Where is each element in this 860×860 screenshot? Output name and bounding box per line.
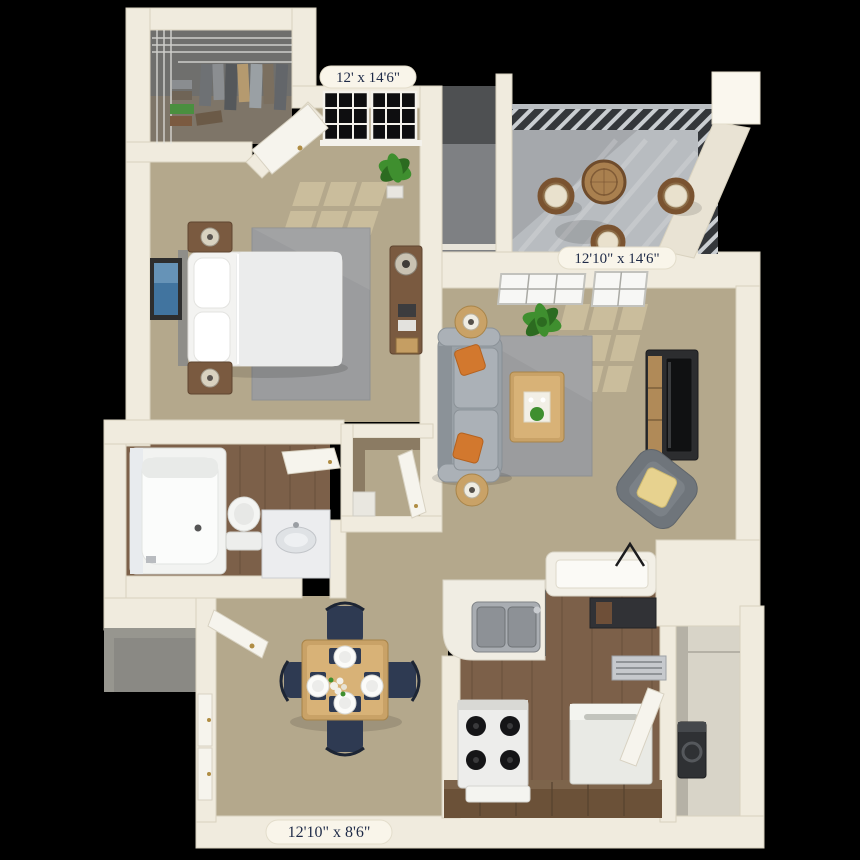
cup <box>529 398 534 403</box>
left-outer-wall <box>126 8 150 446</box>
toilet-seat <box>234 503 254 525</box>
door-knob <box>250 644 255 649</box>
living-dimension-label: 12'10" x 14'6" <box>574 251 659 267</box>
alcove-baseboard <box>442 244 496 250</box>
console-drawers <box>648 356 662 454</box>
bathroom-top-wall <box>104 420 344 444</box>
living-window <box>498 274 585 304</box>
basket <box>396 338 418 353</box>
plate-center <box>339 651 351 663</box>
hall-closet-top-wall <box>341 424 433 438</box>
tub-drain <box>195 525 202 532</box>
balcony-column-top <box>712 72 760 124</box>
laundry-right-wall <box>740 606 764 848</box>
dining-chair <box>326 603 364 644</box>
tv-console <box>646 350 698 460</box>
bedroom-window <box>324 92 368 140</box>
stove-drawer <box>466 786 530 802</box>
sink-basin <box>508 607 536 647</box>
wall-art <box>150 258 182 320</box>
appliance-front <box>596 602 612 624</box>
entry-alcove-shadow <box>442 86 496 144</box>
lamp-finial <box>207 375 213 381</box>
sink-faucet <box>293 522 299 528</box>
tub-tile-surround <box>130 448 143 574</box>
door-knob <box>207 718 211 722</box>
closet-top-wall <box>126 8 316 30</box>
hall-closet-bottom-wall <box>341 516 442 532</box>
entry-porch-slab <box>104 594 196 630</box>
hall-closet-left-wall <box>341 424 353 530</box>
railing-top-rail <box>512 104 718 109</box>
tub-shade <box>142 458 218 478</box>
box <box>398 320 416 331</box>
pillow <box>194 312 230 362</box>
sofa-back <box>438 346 452 468</box>
counter-appliance <box>590 598 656 628</box>
sink-faucet <box>534 607 541 614</box>
sink-inner <box>284 533 308 547</box>
bar-top <box>556 560 648 588</box>
stove <box>458 700 530 802</box>
toilet-tank <box>226 532 262 550</box>
dining-table <box>302 640 388 720</box>
dresser <box>390 246 422 354</box>
door-knob <box>328 460 332 464</box>
plate-center <box>366 680 378 692</box>
pillow <box>194 258 230 308</box>
vanity <box>262 510 330 578</box>
laundry-left-wall <box>660 626 676 822</box>
patio-table <box>583 161 625 203</box>
box <box>398 304 416 317</box>
sofa <box>432 328 512 486</box>
tv-highlight <box>668 362 671 448</box>
lamp-finial <box>468 319 474 325</box>
small-plant <box>530 407 544 421</box>
hall-closet <box>353 438 426 518</box>
toilet <box>226 497 262 550</box>
bedroom-dimension-label: 12' x 14'6" <box>336 70 400 86</box>
duvet <box>236 252 342 366</box>
patio-chair <box>660 180 692 212</box>
kitchen-sink <box>472 602 541 652</box>
floorplan-canvas: 12' x 14'6" 12'10" x 14'6" 12'10" x 8'6" <box>0 0 860 860</box>
entry-porch-shade <box>114 638 196 692</box>
chair-cushion <box>545 185 567 207</box>
bathtub <box>130 448 226 574</box>
stove-controls <box>458 700 528 710</box>
side-table <box>455 306 487 338</box>
hall-closet-shelf <box>353 492 375 516</box>
door-knob <box>414 504 418 508</box>
nightstand <box>188 222 232 252</box>
lamp-finial <box>469 487 475 493</box>
closet-bottom-wall <box>126 142 252 162</box>
closet-right-wall <box>292 8 316 98</box>
door-knob <box>298 146 303 151</box>
floorplan-render: 12' x 14'6" 12'10" x 14'6" 12'10" x 8'6" <box>0 0 860 860</box>
hall-carpet <box>341 530 448 600</box>
nightstand <box>188 362 232 394</box>
bedroom-window <box>372 92 416 140</box>
bathroom-bottom-wall <box>104 576 302 598</box>
door-knob <box>207 772 211 776</box>
bathroom-left-wall <box>104 420 126 598</box>
balcony-left-wall <box>496 74 512 256</box>
plate-center <box>339 697 351 709</box>
balcony-top-railing <box>512 108 718 130</box>
washer-top <box>678 722 706 732</box>
vent-grate <box>612 656 666 680</box>
tub-faucet <box>146 556 156 563</box>
plate-center <box>312 680 324 692</box>
cup <box>541 398 546 403</box>
sink-basin <box>477 607 505 647</box>
plant-pot <box>387 186 403 198</box>
chair-cushion <box>665 185 687 207</box>
side-table <box>456 474 488 506</box>
living-window <box>592 272 648 306</box>
coffee-table <box>510 372 564 442</box>
bed <box>178 250 348 378</box>
dining-dimension-label: 12'10" x 8'6" <box>288 824 371 841</box>
patio-chair <box>540 180 572 212</box>
lamp-finial <box>207 234 213 240</box>
lamp-finial <box>402 260 410 268</box>
dishwasher-handle <box>584 714 638 720</box>
